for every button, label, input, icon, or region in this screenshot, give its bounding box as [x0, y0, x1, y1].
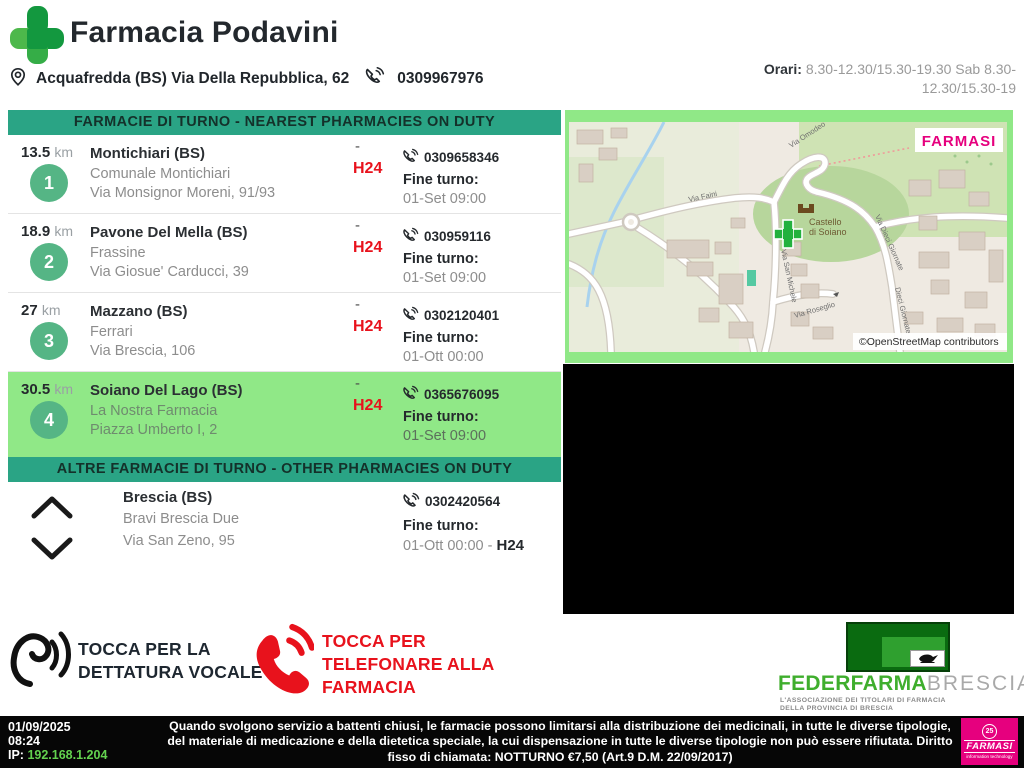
location-pin-icon [8, 67, 28, 92]
federfarma-tagline: L'ASSOCIAZIONE DEI TITOLARI DI FARMACIA … [780, 697, 946, 713]
fine-turno-label: Fine turno: [403, 251, 479, 267]
farmasi-map-logo: FARMASI [922, 133, 997, 150]
legal-disclaimer: Quando svolgono servizio a battenti chiu… [165, 719, 955, 765]
pharmacy-cross-logo-icon [8, 5, 66, 65]
phone-icon [401, 306, 419, 324]
phone-line: 030959116 [401, 227, 491, 245]
h24-badge: H24 [353, 160, 382, 178]
date: 01/09/2025 [8, 720, 107, 734]
h24-badge: H24 [353, 239, 382, 257]
opening-hours: Orari: 8.30-12.30/15.30-19.30 Sab 8.30-1… [746, 60, 1016, 98]
map-container[interactable]: Castello di Soiano Via Omodeo Via Faini … [565, 110, 1013, 363]
dash: - [355, 217, 360, 234]
call-pharmacy-label[interactable]: TOCCA PER TELEFONARE ALLA FARMACIA [322, 630, 494, 699]
pharmacy-row-1[interactable]: 13.5 km 1 Montichiari (BS) Comunale Mont… [8, 135, 561, 214]
opening-hours-label: Orari: [764, 61, 802, 77]
ip-line: IP: 192.168.1.204 [8, 748, 107, 762]
phone-icon [401, 148, 419, 166]
fine-turno-value: 01-Ott 00:00 [403, 349, 484, 365]
scroll-up-button[interactable] [28, 492, 76, 522]
pharmacy-street: Via Brescia, 106 [90, 343, 195, 359]
page-title: Farmacia Podavini [70, 16, 339, 50]
h24-badge: H24 [353, 397, 382, 415]
other-pharmacies-banner: ALTRE FARMACIE DI TURNO - OTHER PHARMACI… [8, 457, 561, 482]
map-poi-line2: di Soiano [809, 227, 847, 237]
pharmacy-name: Frassine [90, 245, 146, 261]
pharmacy-phone: 0302120401 [424, 308, 499, 323]
pharmacy-street: Via Monsignor Moreni, 91/93 [90, 185, 275, 201]
fine-turno-label: Fine turno: [403, 330, 479, 346]
time: 08:24 [8, 734, 107, 748]
distance: 30.5 km [21, 381, 73, 398]
fine-turno-value: 01-Set 09:00 [403, 428, 486, 444]
fine-turno-value: 01-Set 09:00 [403, 191, 486, 207]
phone-icon [401, 385, 419, 403]
pharmacy-street: Via San Zeno, 95 [123, 533, 235, 549]
pharmacy-name: Comunale Montichiari [90, 166, 230, 182]
pharmacy-phone: 0309658346 [424, 150, 499, 165]
voice-dictation-button[interactable] [8, 622, 72, 699]
distance: 18.9 km [21, 223, 73, 240]
pharmacy-name: La Nostra Farmacia [90, 403, 217, 419]
pharmacy-phone: 0309967976 [397, 70, 483, 88]
rank-badge: 3 [30, 322, 68, 360]
status-bar: 01/09/2025 08:24 IP: 192.168.1.204 Quand… [0, 716, 1024, 768]
pharmacy-row-2[interactable]: 18.9 km 2 Pavone Del Mella (BS) Frassine… [8, 214, 561, 293]
opening-hours-value: 8.30-12.30/15.30-19.30 Sab 8.30-12.30/15… [806, 61, 1016, 96]
federfarma-wordmark: FEDERFARMABRESCIA [778, 672, 1024, 696]
ear-icon [8, 622, 72, 694]
dash: - [355, 375, 360, 392]
scroll-down-button[interactable] [28, 534, 76, 564]
voice-dictation-label[interactable]: TOCCA PER LA DETTATURA VOCALE [78, 638, 263, 684]
phone-icon [401, 492, 420, 511]
other-pharmacy-row[interactable]: Brescia (BS) Bravi Brescia Due Via San Z… [8, 482, 561, 613]
pharmacy-phone: 0302420564 [425, 494, 500, 509]
rank-badge: 4 [30, 401, 68, 439]
rank-badge: 1 [30, 164, 68, 202]
dash: - [355, 296, 360, 313]
system-info: 01/09/2025 08:24 IP: 192.168.1.204 [8, 720, 107, 762]
bird-icon [917, 652, 939, 665]
phone-icon [363, 66, 385, 93]
pharmacy-row-4-selected[interactable]: 30.5 km 4 Soiano Del Lago (BS) La Nostra… [8, 372, 561, 457]
distance: 27 km [21, 302, 61, 319]
nearest-pharmacies-banner: FARMACIE DI TURNO - NEAREST PHARMACIES O… [8, 110, 561, 135]
pharmacy-row-3[interactable]: 27 km 3 Mazzano (BS) Ferrari Via Brescia… [8, 293, 561, 372]
pharmacy-street: Via Giosue' Carducci, 39 [90, 264, 249, 280]
pharmacy-name: Bravi Brescia Due [123, 511, 239, 527]
ip-address: 192.168.1.204 [27, 748, 107, 762]
pharmacy-street: Piazza Umberto I, 2 [90, 422, 217, 438]
phone-line: 0365676095 [401, 385, 499, 403]
pharmacy-phone: 0365676095 [424, 387, 499, 402]
pharmacy-phone: 030959116 [424, 229, 491, 244]
red-phone-icon [248, 620, 314, 698]
rank-badge: 2 [30, 243, 68, 281]
phone-icon [401, 227, 419, 245]
fine-turno-value: 01-Ott 00:00 - H24 [403, 537, 524, 554]
phone-line: 0302420564 [401, 492, 500, 511]
call-pharmacy-button[interactable] [248, 620, 314, 703]
pharmacy-city: Soiano Del Lago (BS) [90, 382, 243, 399]
pharmacy-address: Acquafredda (BS) Via Della Repubblica, 6… [36, 70, 349, 88]
h24-badge: H24 [497, 537, 525, 554]
phone-line: 0309658346 [401, 148, 499, 166]
kiosk-screen: Farmacia Podavini Acquafredda (BS) Via D… [0, 0, 1024, 768]
pharmacy-name: Ferrari [90, 324, 133, 340]
pharmacy-address-row: Acquafredda (BS) Via Della Repubblica, 6… [8, 66, 483, 92]
fine-turno-label: Fine turno: [403, 172, 479, 188]
map-attribution: ©OpenStreetMap contributors [859, 336, 999, 348]
h24-badge: H24 [353, 318, 382, 336]
fine-turno-value: 01-Set 09:00 [403, 270, 486, 286]
map-poi-line1: Castello [809, 217, 842, 227]
openstreetmap-view[interactable]: Castello di Soiano Via Omodeo Via Faini … [569, 122, 1007, 352]
federfarma-logo-icon [846, 622, 950, 672]
pharmacy-city: Montichiari (BS) [90, 145, 205, 162]
pharmacy-city: Mazzano (BS) [90, 303, 188, 320]
fine-turno-label: Fine turno: [403, 518, 479, 534]
pharmacy-city: Brescia (BS) [123, 489, 212, 506]
farmasi-logo: 25 FARMASI information technology [961, 718, 1018, 765]
pharmacy-city: Pavone Del Mella (BS) [90, 224, 248, 241]
anniversary-badge: 25 [982, 724, 997, 739]
dash: - [355, 138, 360, 155]
fine-turno-label: Fine turno: [403, 409, 479, 425]
phone-line: 0302120401 [401, 306, 499, 324]
pharmacies-on-duty-panel: FARMACIE DI TURNO - NEAREST PHARMACIES O… [8, 110, 561, 613]
distance: 13.5 km [21, 144, 73, 161]
video-placeholder [563, 364, 1014, 614]
